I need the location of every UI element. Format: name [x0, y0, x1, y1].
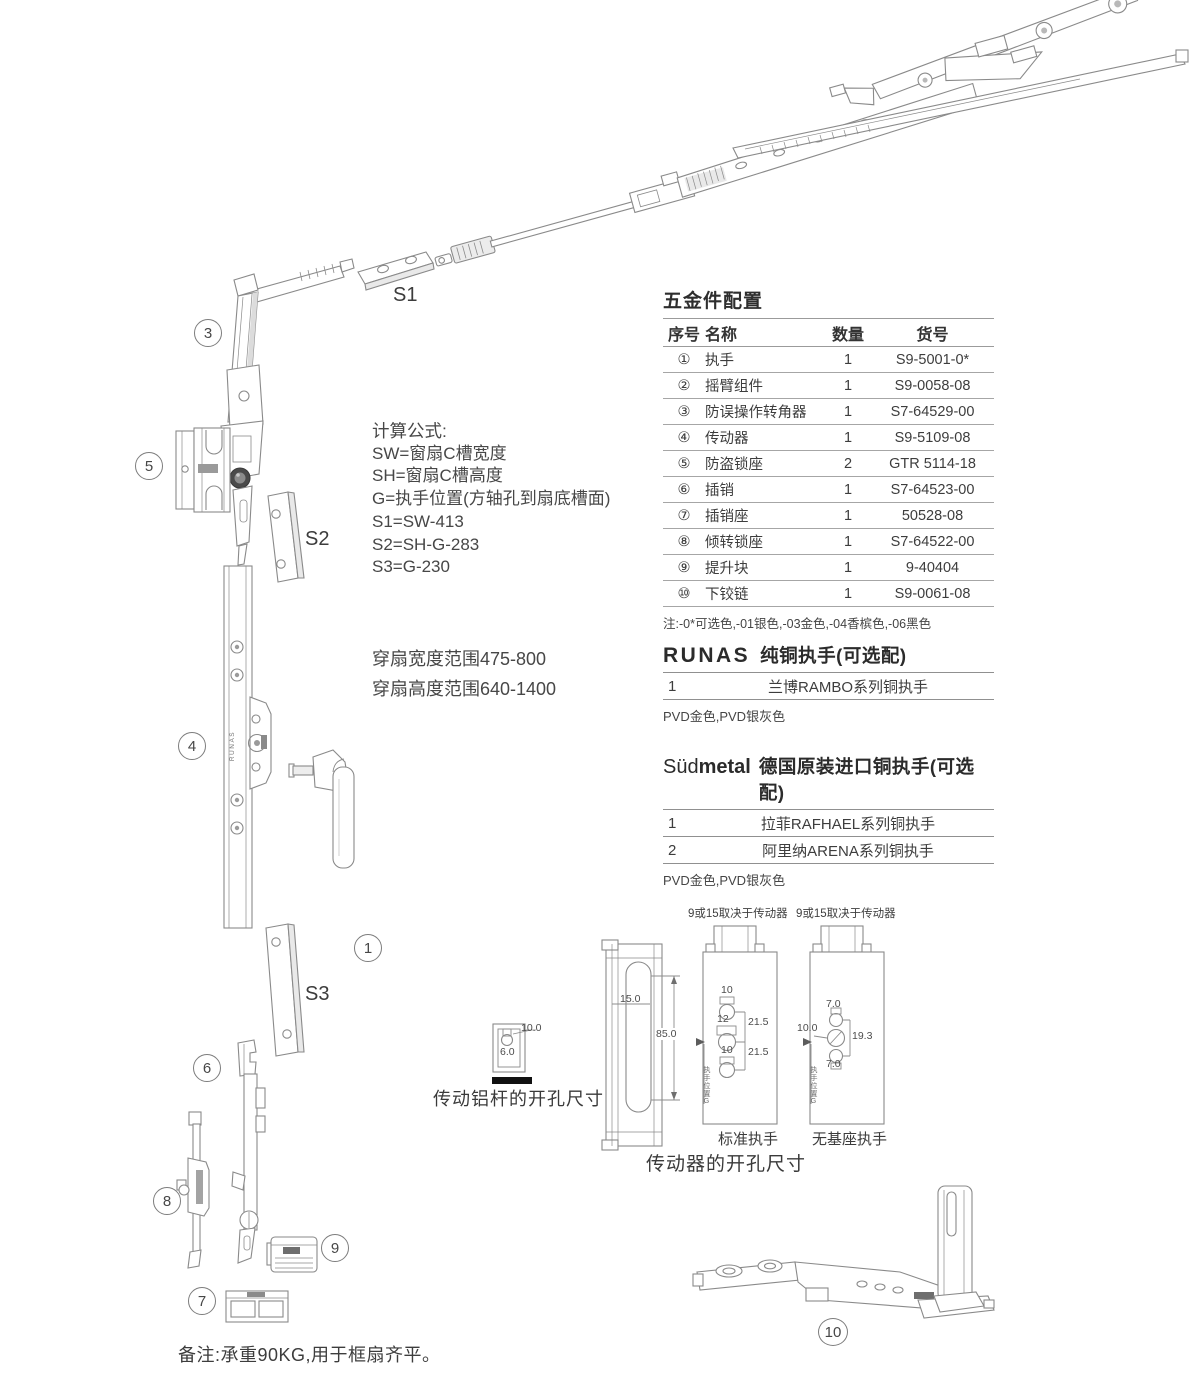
- cell-code: S7-64522-00: [871, 529, 994, 555]
- cell-qty: 1: [825, 347, 871, 373]
- table-row: ②摇臂组件1S9-0058-08: [663, 373, 994, 399]
- formula-line: S1=SW-413: [372, 511, 610, 534]
- callout-6: 6: [193, 1054, 221, 1082]
- s3-plate-drawing: [266, 924, 304, 1056]
- sash-height-range: 穿扇高度范围640-1400: [372, 674, 556, 704]
- drive-gear-drawing: RUNAS: [224, 566, 271, 928]
- cell-code: S9-0058-08: [871, 373, 994, 399]
- cell-no: ⑩: [663, 581, 705, 607]
- cell-qty: 1: [825, 555, 871, 581]
- formula-line: S3=G-230: [372, 556, 610, 579]
- table-row: ⑤防盗锁座2GTR 5114-18: [663, 451, 994, 477]
- row-no: 2: [663, 842, 702, 859]
- std-dim-hole3: 10: [721, 1044, 733, 1056]
- table-row: ③防误操作转角器1S7-64529-00: [663, 399, 994, 425]
- cell-qty: 1: [825, 529, 871, 555]
- table-row: ④传动器1S9-5109-08: [663, 425, 994, 451]
- part4-brand-text: RUNAS: [229, 731, 236, 761]
- bottom-hinge-drawing: [693, 1186, 994, 1318]
- profile-dim-width: 15.0: [620, 993, 640, 1005]
- callout-5: 5: [135, 452, 163, 480]
- rod-dim-10: 10.0: [521, 1022, 541, 1034]
- cell-no: ②: [663, 373, 705, 399]
- col-header-qty: 数量: [825, 319, 871, 347]
- nb-dim-bottom: 7.0: [826, 1058, 841, 1070]
- standard-top-note: 9或15取决于传动器: [688, 905, 788, 921]
- sudmetal-row: 2 阿里纳ARENA系列铜执手: [663, 837, 994, 864]
- diagram-canvas: RUNAS: [0, 0, 1200, 1400]
- col-header-name: 名称: [705, 319, 825, 347]
- cell-name: 插销座: [705, 503, 825, 529]
- cell-name: 插销: [705, 477, 825, 503]
- formula-line: S2=SH-G-283: [372, 534, 610, 557]
- callout-8: 8: [153, 1187, 181, 1215]
- profile-dim-height: 85.0: [655, 1028, 677, 1040]
- sudmetal-finishes: PVD金色,PVD银灰色: [663, 864, 994, 889]
- profile-section-diagram: [602, 940, 680, 1150]
- s2-plate-drawing: [268, 492, 304, 582]
- row-name: 兰博RAMBO系列铜执手: [702, 676, 994, 697]
- sudmetal-option-block: Südmetal 德国原装进口铜执手(可选配) 1 拉菲RAFHAEL系列铜执手…: [663, 753, 994, 889]
- cell-name: 倾转锁座: [705, 529, 825, 555]
- runas-title: 纯铜执手(可选配): [760, 642, 906, 668]
- row-name: 拉菲RAFHAEL系列铜执手: [702, 813, 994, 834]
- std-dim-span1: 21.5: [748, 1016, 768, 1028]
- cell-qty: 1: [825, 399, 871, 425]
- load-footnote: 备注:承重90KG,用于框扇齐平。: [178, 1341, 441, 1367]
- table-row: ⑦插销座150528-08: [663, 503, 994, 529]
- col-header-code: 货号: [871, 319, 994, 347]
- cell-no: ⑦: [663, 503, 705, 529]
- cell-name: 执手: [705, 347, 825, 373]
- callout-9: 9: [321, 1234, 349, 1262]
- handle-drawing: [289, 750, 354, 868]
- cell-no: ⑨: [663, 555, 705, 581]
- nb-dim-right: 19.3: [852, 1030, 872, 1042]
- table-row: ⑩下铰链1S9-0061-08: [663, 581, 994, 607]
- bolt-keeper-drawing: [226, 1291, 288, 1322]
- callout-3: 3: [194, 319, 222, 347]
- std-dim-hole2: 12: [717, 1013, 729, 1025]
- callout-4: 4: [178, 732, 206, 760]
- sudmetal-row: 1 拉菲RAFHAEL系列铜执手: [663, 810, 994, 837]
- nobase-top-note: 9或15取决于传动器: [796, 905, 896, 921]
- lift-block-drawing: [267, 1237, 317, 1272]
- rod-drill-caption: 传动铝杆的开孔尺寸: [433, 1085, 604, 1111]
- cell-qty: 1: [825, 581, 871, 607]
- cell-name: 防盗锁座: [705, 451, 825, 477]
- cell-code: S9-5109-08: [871, 425, 994, 451]
- formula-line: SH=窗扇C槽高度: [372, 465, 610, 488]
- table-row: ⑥插销1S7-64523-00: [663, 477, 994, 503]
- cell-code: S7-64523-00: [871, 477, 994, 503]
- cell-qty: 1: [825, 425, 871, 451]
- hardware-spec-sheet: RUNAS: [0, 0, 1200, 1400]
- color-options-note: 注:-0*可选色,-01银色,-03金色,-04香槟色,-06黑色: [663, 613, 994, 632]
- sudmetal-title: 德国原装进口铜执手(可选配): [759, 753, 994, 805]
- cell-no: ⑤: [663, 451, 705, 477]
- cell-qty: 1: [825, 373, 871, 399]
- cell-no: ④: [663, 425, 705, 451]
- cell-code: S9-5001-0*: [871, 347, 994, 373]
- cell-code: 50528-08: [871, 503, 994, 529]
- table-header-row: 序号 名称 数量 货号: [663, 319, 994, 347]
- cell-code: S7-64529-00: [871, 399, 994, 425]
- cell-name: 防误操作转角器: [705, 399, 825, 425]
- tilt-lock-drawing: [177, 1112, 209, 1268]
- s2-label: S2: [305, 528, 329, 551]
- cell-no: ⑧: [663, 529, 705, 555]
- cell-qty: 2: [825, 451, 871, 477]
- std-dim-span2: 21.5: [748, 1046, 768, 1058]
- sudmetal-brand-bold: metal: [699, 756, 751, 779]
- runas-row: 1 兰博RAMBO系列铜执手: [663, 673, 994, 700]
- callout-10: 10: [818, 1318, 848, 1346]
- cell-no: ③: [663, 399, 705, 425]
- row-no: 1: [663, 815, 702, 832]
- cell-name: 摇臂组件: [705, 373, 825, 399]
- sudmetal-brand-light: Süd: [663, 756, 699, 779]
- parts-table: 五金件配置 序号 名称 数量 货号 ①执手1S9-5001-0* ②摇臂组件1S…: [663, 286, 994, 632]
- sash-width-range: 穿扇宽度范围475-800: [372, 644, 556, 674]
- nobase-caption: 无基座执手: [812, 1128, 887, 1149]
- table-row: ⑧倾转锁座1S7-64522-00: [663, 529, 994, 555]
- formula-block: 计算公式: SW=窗扇C槽宽度 SH=窗扇C槽高度 G=执手位置(方轴孔到扇底槽…: [372, 420, 610, 579]
- table-row: ⑨提升块19-40404: [663, 555, 994, 581]
- row-no: 1: [663, 678, 702, 695]
- cell-no: ⑥: [663, 477, 705, 503]
- runas-heading: RUNAS 纯铜执手(可选配): [663, 642, 994, 673]
- runas-option-block: RUNAS 纯铜执手(可选配) 1 兰博RAMBO系列铜执手 PVD金色,PVD…: [663, 642, 994, 725]
- s1-label: S1: [393, 284, 417, 307]
- standard-caption: 标准执手: [718, 1128, 778, 1149]
- cell-qty: 1: [825, 503, 871, 529]
- parts-table-title: 五金件配置: [663, 286, 994, 313]
- cell-code: S9-0061-08: [871, 581, 994, 607]
- nb-handle-pos-label: 执手位置G: [808, 1066, 818, 1106]
- s3-label: S3: [305, 983, 329, 1006]
- nb-dim-top: 7.0: [826, 998, 841, 1010]
- formula-title: 计算公式:: [372, 420, 610, 443]
- nb-dim-left: 10.0: [797, 1022, 817, 1034]
- cell-code: GTR 5114-18: [871, 451, 994, 477]
- row-name: 阿里纳ARENA系列铜执手: [702, 840, 994, 861]
- anti-theft-keeper-drawing: [176, 428, 230, 512]
- cell-qty: 1: [825, 477, 871, 503]
- callout-7: 7: [188, 1287, 216, 1315]
- callout-1: 1: [354, 934, 382, 962]
- table-row: ①执手1S9-5001-0*: [663, 347, 994, 373]
- cell-no: ①: [663, 347, 705, 373]
- rod-dim-6: 6.0: [500, 1046, 515, 1058]
- std-dim-hole1: 10: [721, 984, 733, 996]
- formula-line: G=执手位置(方轴孔到扇底槽面): [372, 488, 610, 511]
- cell-name: 下铰链: [705, 581, 825, 607]
- col-header-no: 序号: [663, 319, 705, 347]
- sash-range-block: 穿扇宽度范围475-800 穿扇高度范围640-1400: [372, 644, 556, 704]
- swing-arm-assembly-drawing: [415, 0, 1157, 268]
- sudmetal-heading: Südmetal 德国原装进口铜执手(可选配): [663, 753, 994, 810]
- std-handle-pos-label: 执手位置G: [701, 1066, 711, 1106]
- formula-line: SW=窗扇C槽宽度: [372, 443, 610, 466]
- runas-finishes: PVD金色,PVD银灰色: [663, 700, 994, 725]
- cell-name: 传动器: [705, 425, 825, 451]
- cell-name: 提升块: [705, 555, 825, 581]
- bolt-drawing: [232, 1040, 265, 1263]
- cell-code: 9-40404: [871, 555, 994, 581]
- runas-brand: RUNAS: [663, 644, 750, 668]
- drive-drill-caption: 传动器的开孔尺寸: [646, 1149, 806, 1176]
